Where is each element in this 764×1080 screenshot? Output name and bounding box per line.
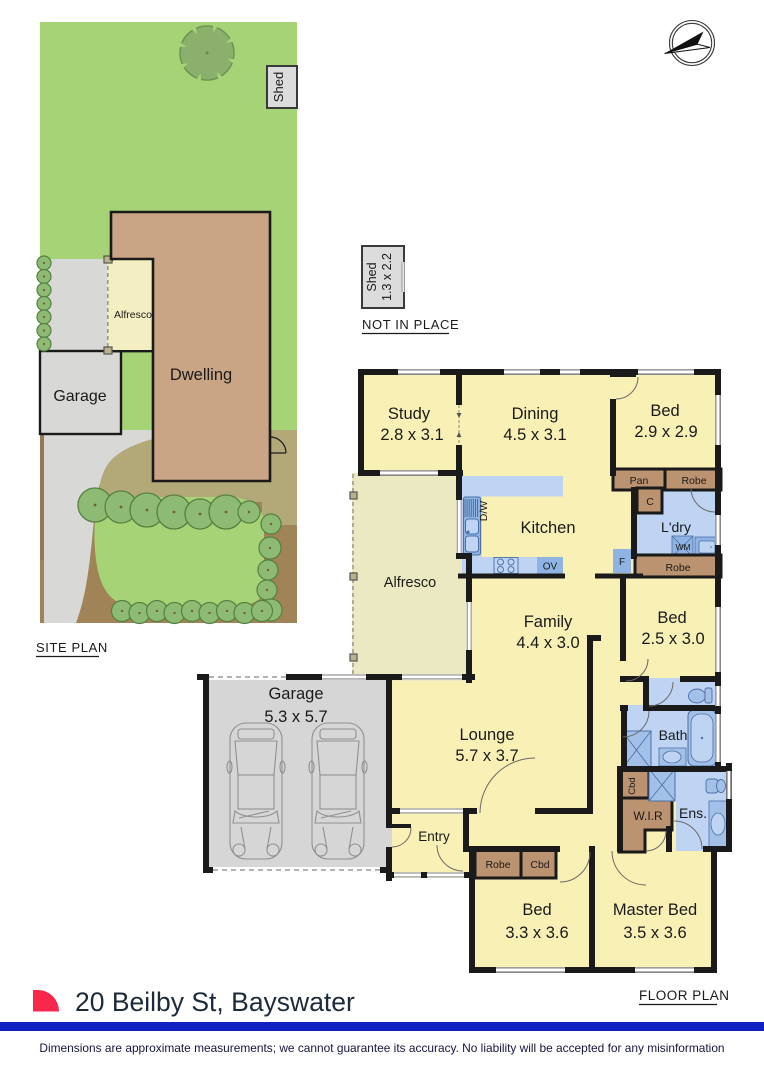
- svg-text:Dimensions are approximate mea: Dimensions are approximate measurements;…: [39, 1041, 724, 1055]
- svg-text:WM: WM: [675, 542, 690, 552]
- svg-text:Alfresco: Alfresco: [114, 309, 152, 321]
- svg-text:5.3 x 5.7: 5.3 x 5.7: [264, 708, 327, 726]
- svg-text:Master Bed: Master Bed: [613, 901, 697, 919]
- svg-text:Study: Study: [388, 405, 431, 423]
- svg-text:Lounge: Lounge: [459, 726, 514, 744]
- svg-text:Alfresco: Alfresco: [384, 575, 436, 591]
- svg-text:5.7 x 3.7: 5.7 x 3.7: [455, 747, 518, 765]
- svg-text:Cbd: Cbd: [627, 777, 638, 794]
- svg-text:Shed: Shed: [271, 72, 286, 102]
- svg-text:D/W: D/W: [478, 501, 490, 522]
- svg-text:Entry: Entry: [418, 829, 450, 844]
- svg-text:3.3 x 3.6: 3.3 x 3.6: [505, 924, 568, 942]
- svg-text:Bath: Bath: [659, 727, 688, 743]
- svg-text:Bed: Bed: [522, 901, 551, 919]
- svg-text:2.9 x 2.9: 2.9 x 2.9: [634, 423, 697, 441]
- svg-text:2.5 x 3.0: 2.5 x 3.0: [641, 630, 704, 648]
- svg-text:SITE PLAN: SITE PLAN: [36, 640, 108, 655]
- svg-text:L'dry: L'dry: [661, 519, 691, 535]
- svg-text:Bed: Bed: [657, 609, 686, 627]
- svg-text:Garage: Garage: [268, 685, 323, 703]
- svg-text:3.5 x 3.6: 3.5 x 3.6: [623, 924, 686, 942]
- svg-text:Kitchen: Kitchen: [520, 519, 575, 537]
- svg-text:Robe: Robe: [681, 475, 706, 487]
- svg-text:Ens.: Ens.: [679, 805, 707, 821]
- svg-text:OV: OV: [543, 562, 558, 573]
- svg-text:Robe: Robe: [665, 562, 690, 574]
- svg-text:4.5 x 3.1: 4.5 x 3.1: [503, 426, 566, 444]
- svg-text:Dining: Dining: [512, 405, 559, 423]
- svg-text:Pan: Pan: [630, 475, 649, 487]
- svg-text:W.I.R: W.I.R: [633, 809, 663, 823]
- svg-text:Bed: Bed: [650, 402, 679, 420]
- svg-text:1.3 x 2.2: 1.3 x 2.2: [380, 253, 394, 301]
- svg-text:Cbd: Cbd: [530, 859, 549, 871]
- svg-text:NOT IN PLACE: NOT IN PLACE: [362, 317, 459, 332]
- svg-text:FLOOR PLAN: FLOOR PLAN: [639, 988, 730, 1003]
- svg-text:F: F: [619, 557, 625, 568]
- svg-text:2.8 x 3.1: 2.8 x 3.1: [380, 426, 443, 444]
- svg-text:Family: Family: [524, 613, 573, 631]
- svg-text:20 Beilby St, Bayswater: 20 Beilby St, Bayswater: [75, 987, 355, 1017]
- svg-text:Robe: Robe: [485, 859, 510, 871]
- svg-text:Garage: Garage: [53, 388, 106, 405]
- svg-text:4.4 x 3.0: 4.4 x 3.0: [516, 634, 579, 652]
- svg-text:Shed: Shed: [365, 262, 379, 291]
- svg-text:Dwelling: Dwelling: [170, 366, 232, 384]
- svg-text:C: C: [646, 496, 654, 508]
